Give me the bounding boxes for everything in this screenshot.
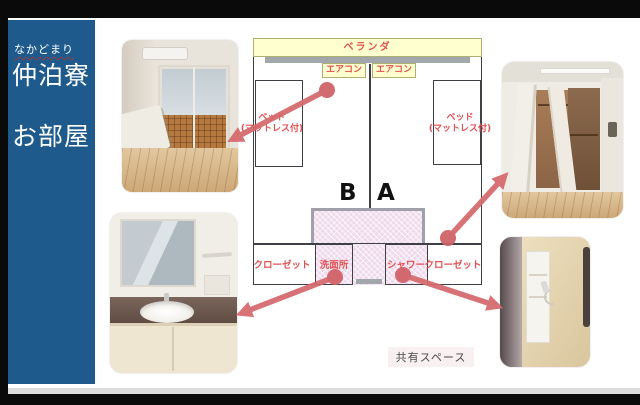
intercom (608, 122, 617, 137)
aircon-unit (142, 47, 188, 60)
shower-label: シャワー (383, 257, 429, 271)
door-frame (500, 237, 522, 367)
veranda-rail (265, 57, 470, 63)
aircon-room-a: エアコン (372, 63, 416, 78)
shared-space-caption: 共有スペース (388, 347, 474, 367)
bed-label-room-a: ベッド (マットレス付) (420, 113, 500, 135)
corridor-mat (356, 279, 382, 284)
cabinet-door-split (172, 327, 174, 371)
bedroom-photo (122, 40, 238, 192)
shower-photo (500, 237, 590, 367)
title-sidebar: なかどまり 仲泊寮 お部屋 (8, 20, 95, 384)
shared-space-area (311, 208, 425, 243)
washbasin-photo (110, 213, 237, 373)
wall-shelf (204, 275, 230, 295)
wood-floor (502, 192, 623, 218)
room-b-letter: B (339, 180, 357, 206)
open-door-left (510, 83, 537, 194)
dorm-furigana: なかどまり (14, 41, 74, 57)
wood-floor (122, 148, 238, 192)
room-a-letter: A (377, 180, 395, 206)
veranda-area: ベランダ (253, 38, 482, 57)
window-mullion (193, 67, 195, 151)
closet-photo (502, 62, 623, 218)
sink (140, 301, 194, 323)
slide-bottom-edge (8, 388, 640, 394)
aircon-room-b: エアコン (322, 63, 366, 78)
closet-shelf (570, 134, 598, 136)
closet-label-room-a: クローゼット (424, 257, 482, 271)
dorm-name: 仲泊寮 (12, 56, 90, 92)
towel-bar (202, 252, 232, 258)
mirror (120, 219, 196, 287)
washroom-label: 洗面所 (314, 257, 354, 271)
cabinet-top-line (110, 323, 237, 326)
bed-label-room-b: ベッド (マットレス付) (232, 113, 312, 135)
room-divider-wall (369, 64, 371, 208)
closet-label-room-b: クローゼット (252, 257, 312, 271)
side-wall (601, 78, 623, 198)
ceiling-pipe (540, 68, 610, 74)
slide-canvas: なかどまり 仲泊寮 お部屋 ベランダ エアコン エアコン ベッド (マットレス付… (0, 0, 640, 405)
cabinet (110, 323, 237, 373)
shower-shelf (529, 274, 547, 276)
page-title: お部屋 (12, 117, 90, 153)
door-edge (583, 247, 590, 327)
